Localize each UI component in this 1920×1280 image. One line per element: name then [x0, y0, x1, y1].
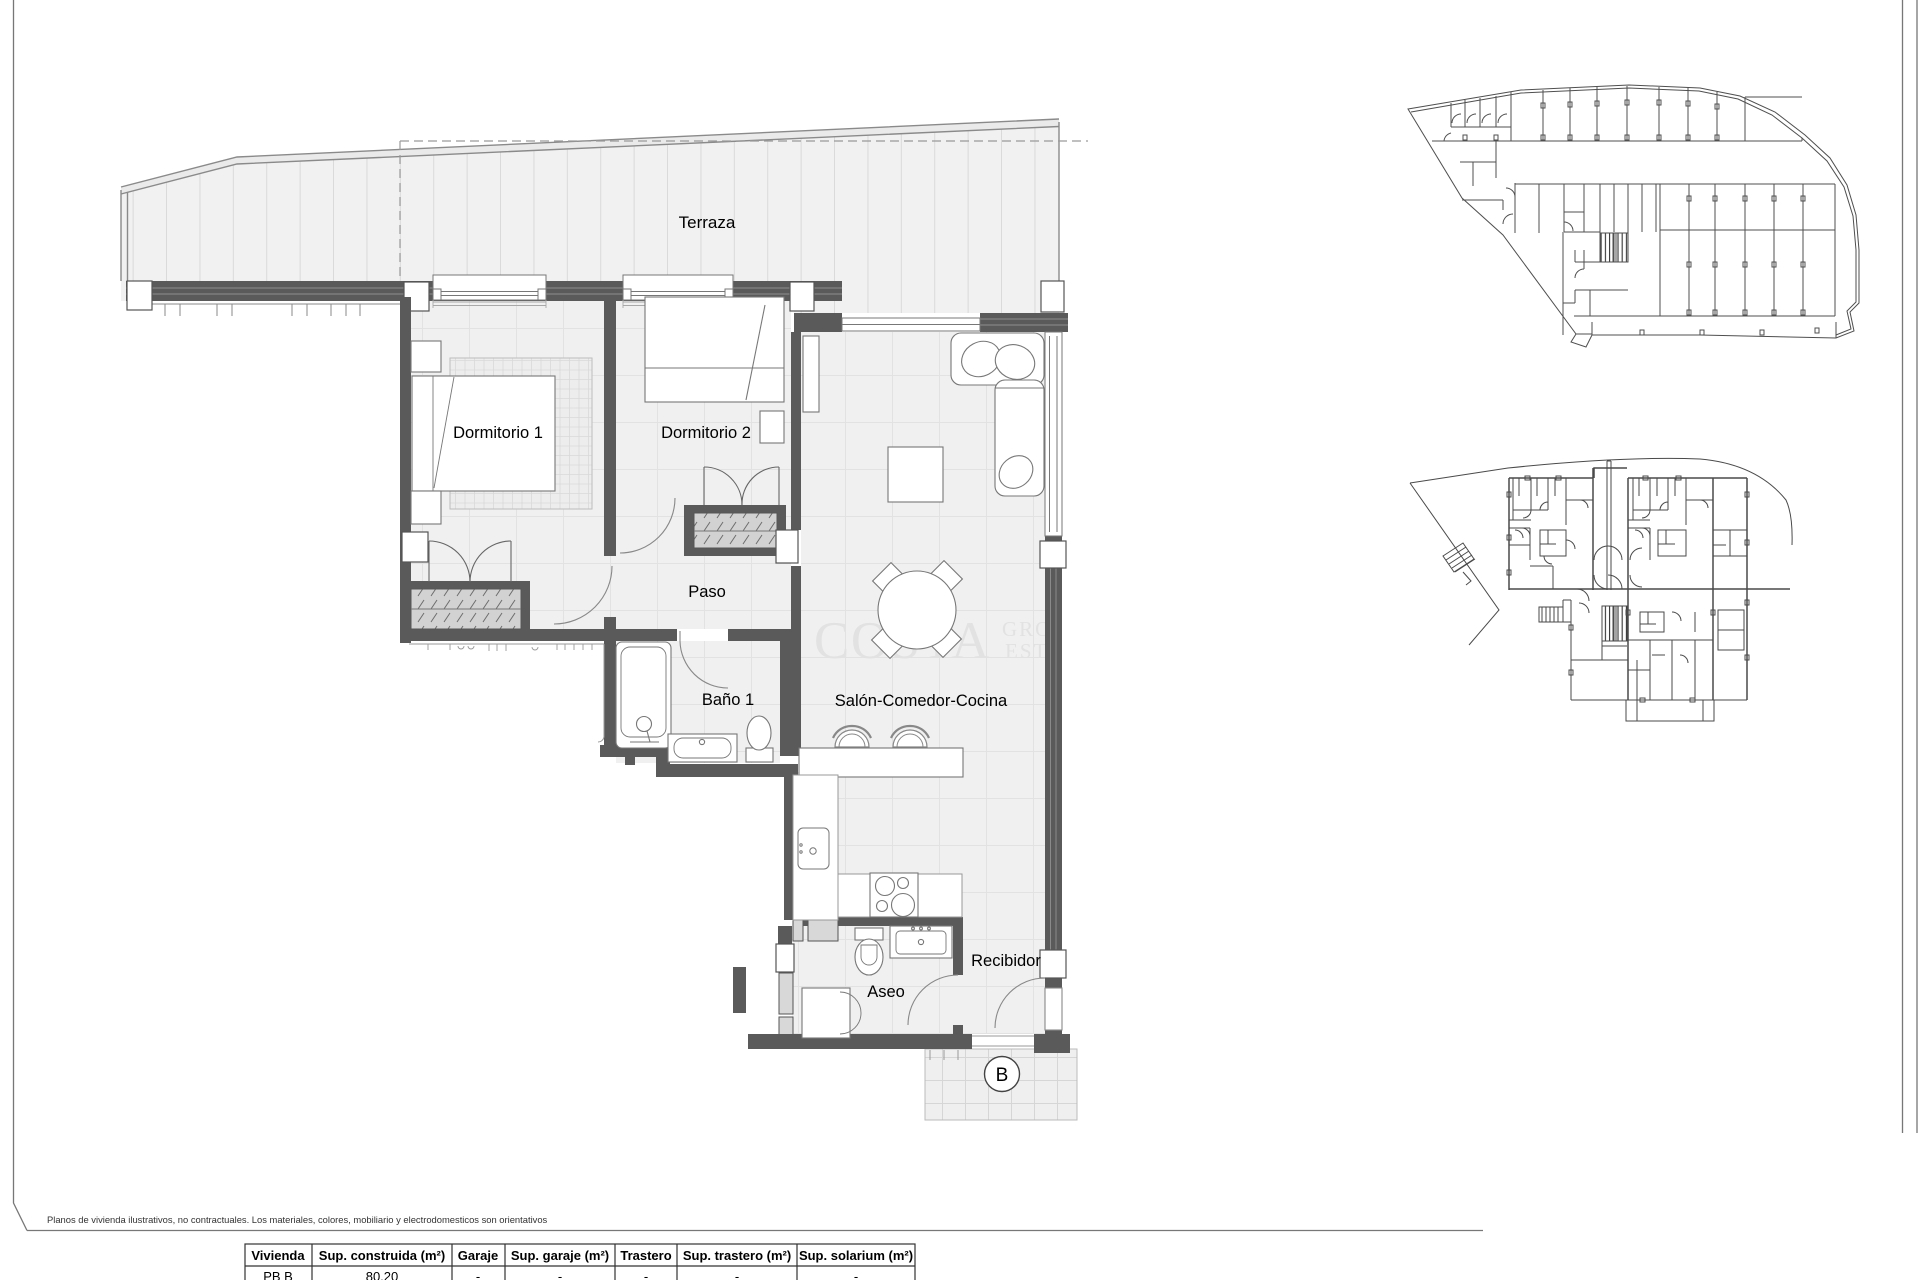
svg-text:-: -	[644, 1269, 648, 1280]
svg-text:Dormitorio 1: Dormitorio 1	[453, 424, 543, 442]
svg-text:B: B	[996, 1065, 1009, 1086]
svg-text:-: -	[558, 1269, 562, 1280]
svg-text:Baño 1: Baño 1	[702, 691, 754, 709]
svg-text:-: -	[735, 1269, 739, 1280]
svg-text:Recibidor: Recibidor	[971, 952, 1041, 970]
svg-text:Sup. solarium (m²): Sup. solarium (m²)	[799, 1248, 913, 1263]
svg-text:GRO: GRO	[1002, 617, 1052, 641]
svg-text:Garaje: Garaje	[458, 1248, 498, 1263]
svg-text:Trastero: Trastero	[620, 1248, 671, 1263]
svg-text:Salón-Comedor-Cocina: Salón-Comedor-Cocina	[835, 692, 1008, 710]
svg-text:Aseo: Aseo	[867, 983, 905, 1001]
svg-text:-: -	[854, 1269, 858, 1280]
svg-text:Planos de vivienda ilustrativo: Planos de vivienda ilustrativos, no cont…	[47, 1214, 548, 1225]
svg-text:Dormitorio 2: Dormitorio 2	[661, 424, 751, 442]
svg-text:Vivienda: Vivienda	[251, 1248, 305, 1263]
svg-text:PB B: PB B	[263, 1269, 293, 1280]
svg-text:Sup. garaje (m²): Sup. garaje (m²)	[511, 1248, 609, 1263]
svg-text:Paso: Paso	[688, 583, 726, 601]
svg-text:80.20: 80.20	[366, 1269, 399, 1280]
svg-text:-: -	[476, 1269, 480, 1280]
svg-text:Sup. construida (m²): Sup. construida (m²)	[319, 1248, 445, 1263]
svg-text:Terraza: Terraza	[679, 213, 736, 232]
svg-text:Sup. trastero (m²): Sup. trastero (m²)	[683, 1248, 791, 1263]
